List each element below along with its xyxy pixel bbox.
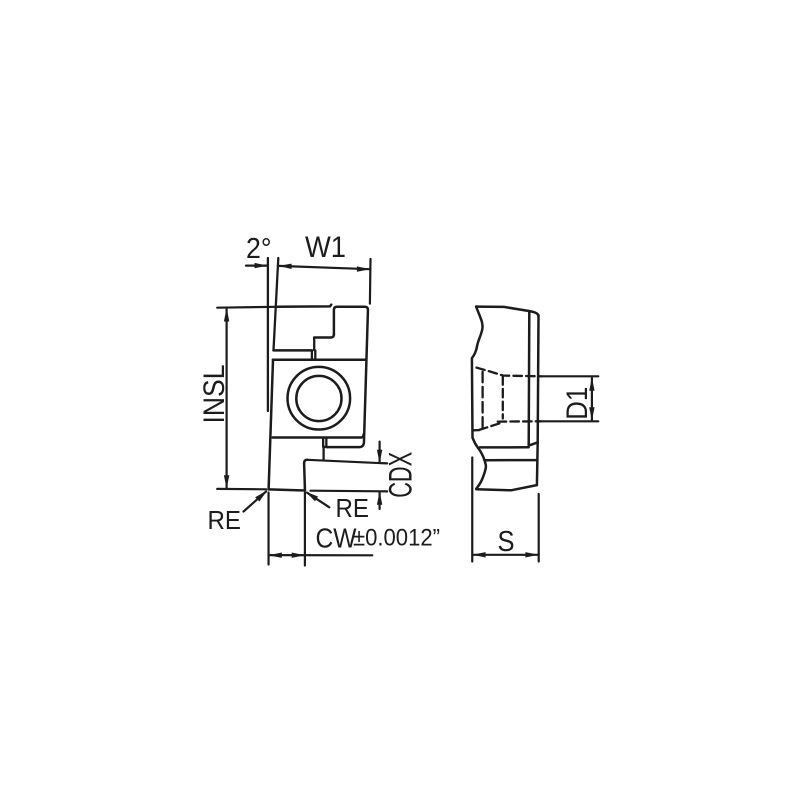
svg-text:S: S [498, 526, 515, 558]
svg-text:2°: 2° [246, 233, 272, 265]
svg-text:RE: RE [208, 505, 242, 535]
svg-text:CW: CW [316, 523, 357, 554]
svg-text:±0.0012”: ±0.0012” [353, 525, 440, 552]
svg-text:D1: D1 [561, 387, 594, 420]
svg-text:CDX: CDX [383, 452, 419, 498]
svg-text:INSL: INSL [198, 365, 231, 424]
svg-text:RE: RE [336, 493, 370, 523]
svg-text:W1: W1 [305, 231, 346, 264]
